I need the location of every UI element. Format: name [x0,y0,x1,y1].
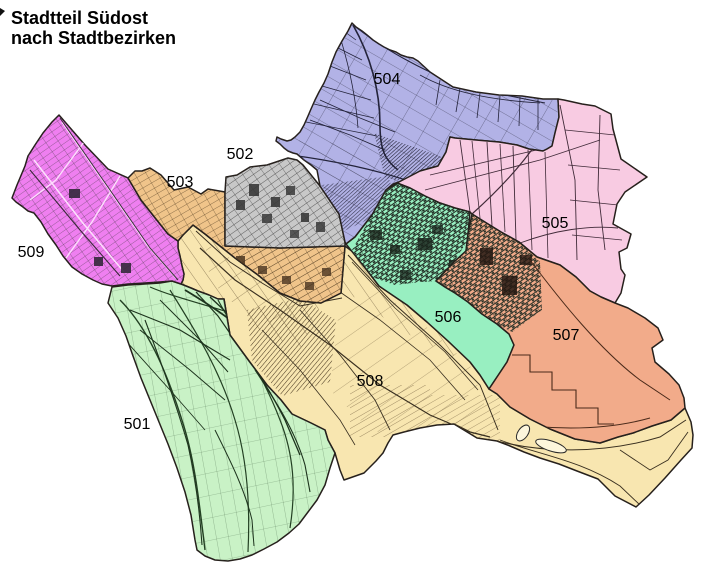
svg-text:507: 507 [553,327,580,344]
svg-text:508: 508 [357,373,384,390]
svg-text:Stadtteil Südost: Stadtteil Südost [11,8,148,28]
svg-text:503: 503 [167,174,194,191]
svg-text:505: 505 [542,215,569,232]
svg-text:509: 509 [18,244,45,261]
svg-text:501: 501 [124,416,151,433]
svg-text:504: 504 [374,71,401,88]
svg-text:506: 506 [435,309,462,326]
svg-text:nach Stadtbezirken: nach Stadtbezirken [11,28,176,48]
svg-text:502: 502 [227,146,254,163]
